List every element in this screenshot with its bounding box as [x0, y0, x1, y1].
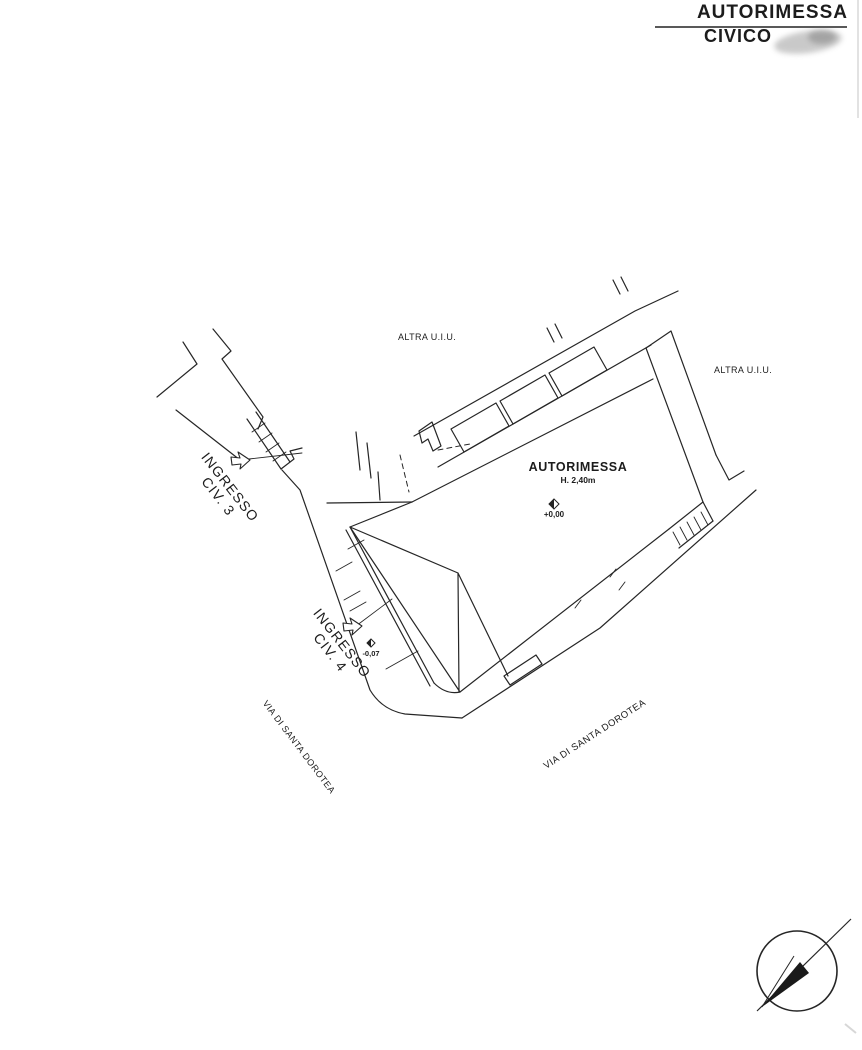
ink-smudge: [773, 26, 843, 57]
floor-plan-drawing: [0, 0, 862, 1050]
scan-artifact: [845, 0, 858, 1033]
label-hall-height: H. 2,40m: [508, 475, 648, 485]
label-level-main: +0,00: [524, 510, 584, 519]
label-hall: AUTORIMESSA: [508, 460, 648, 474]
label-neighbor-top: ALTRA U.I.U.: [398, 332, 456, 342]
plan-sheet: AUTORIMESSA CIVICO ALTRA U.I.U. ALTRA U.…: [0, 0, 862, 1050]
page-subtitle: CIVICO: [600, 26, 772, 47]
label-neighbor-right: ALTRA U.I.U.: [714, 365, 772, 375]
level-marker-icon-main: [549, 499, 559, 509]
page-title: AUTORIMESSA: [600, 2, 848, 24]
level-marker-icon-entrance4: [367, 639, 375, 647]
north-arrow-icon: [757, 919, 851, 1011]
